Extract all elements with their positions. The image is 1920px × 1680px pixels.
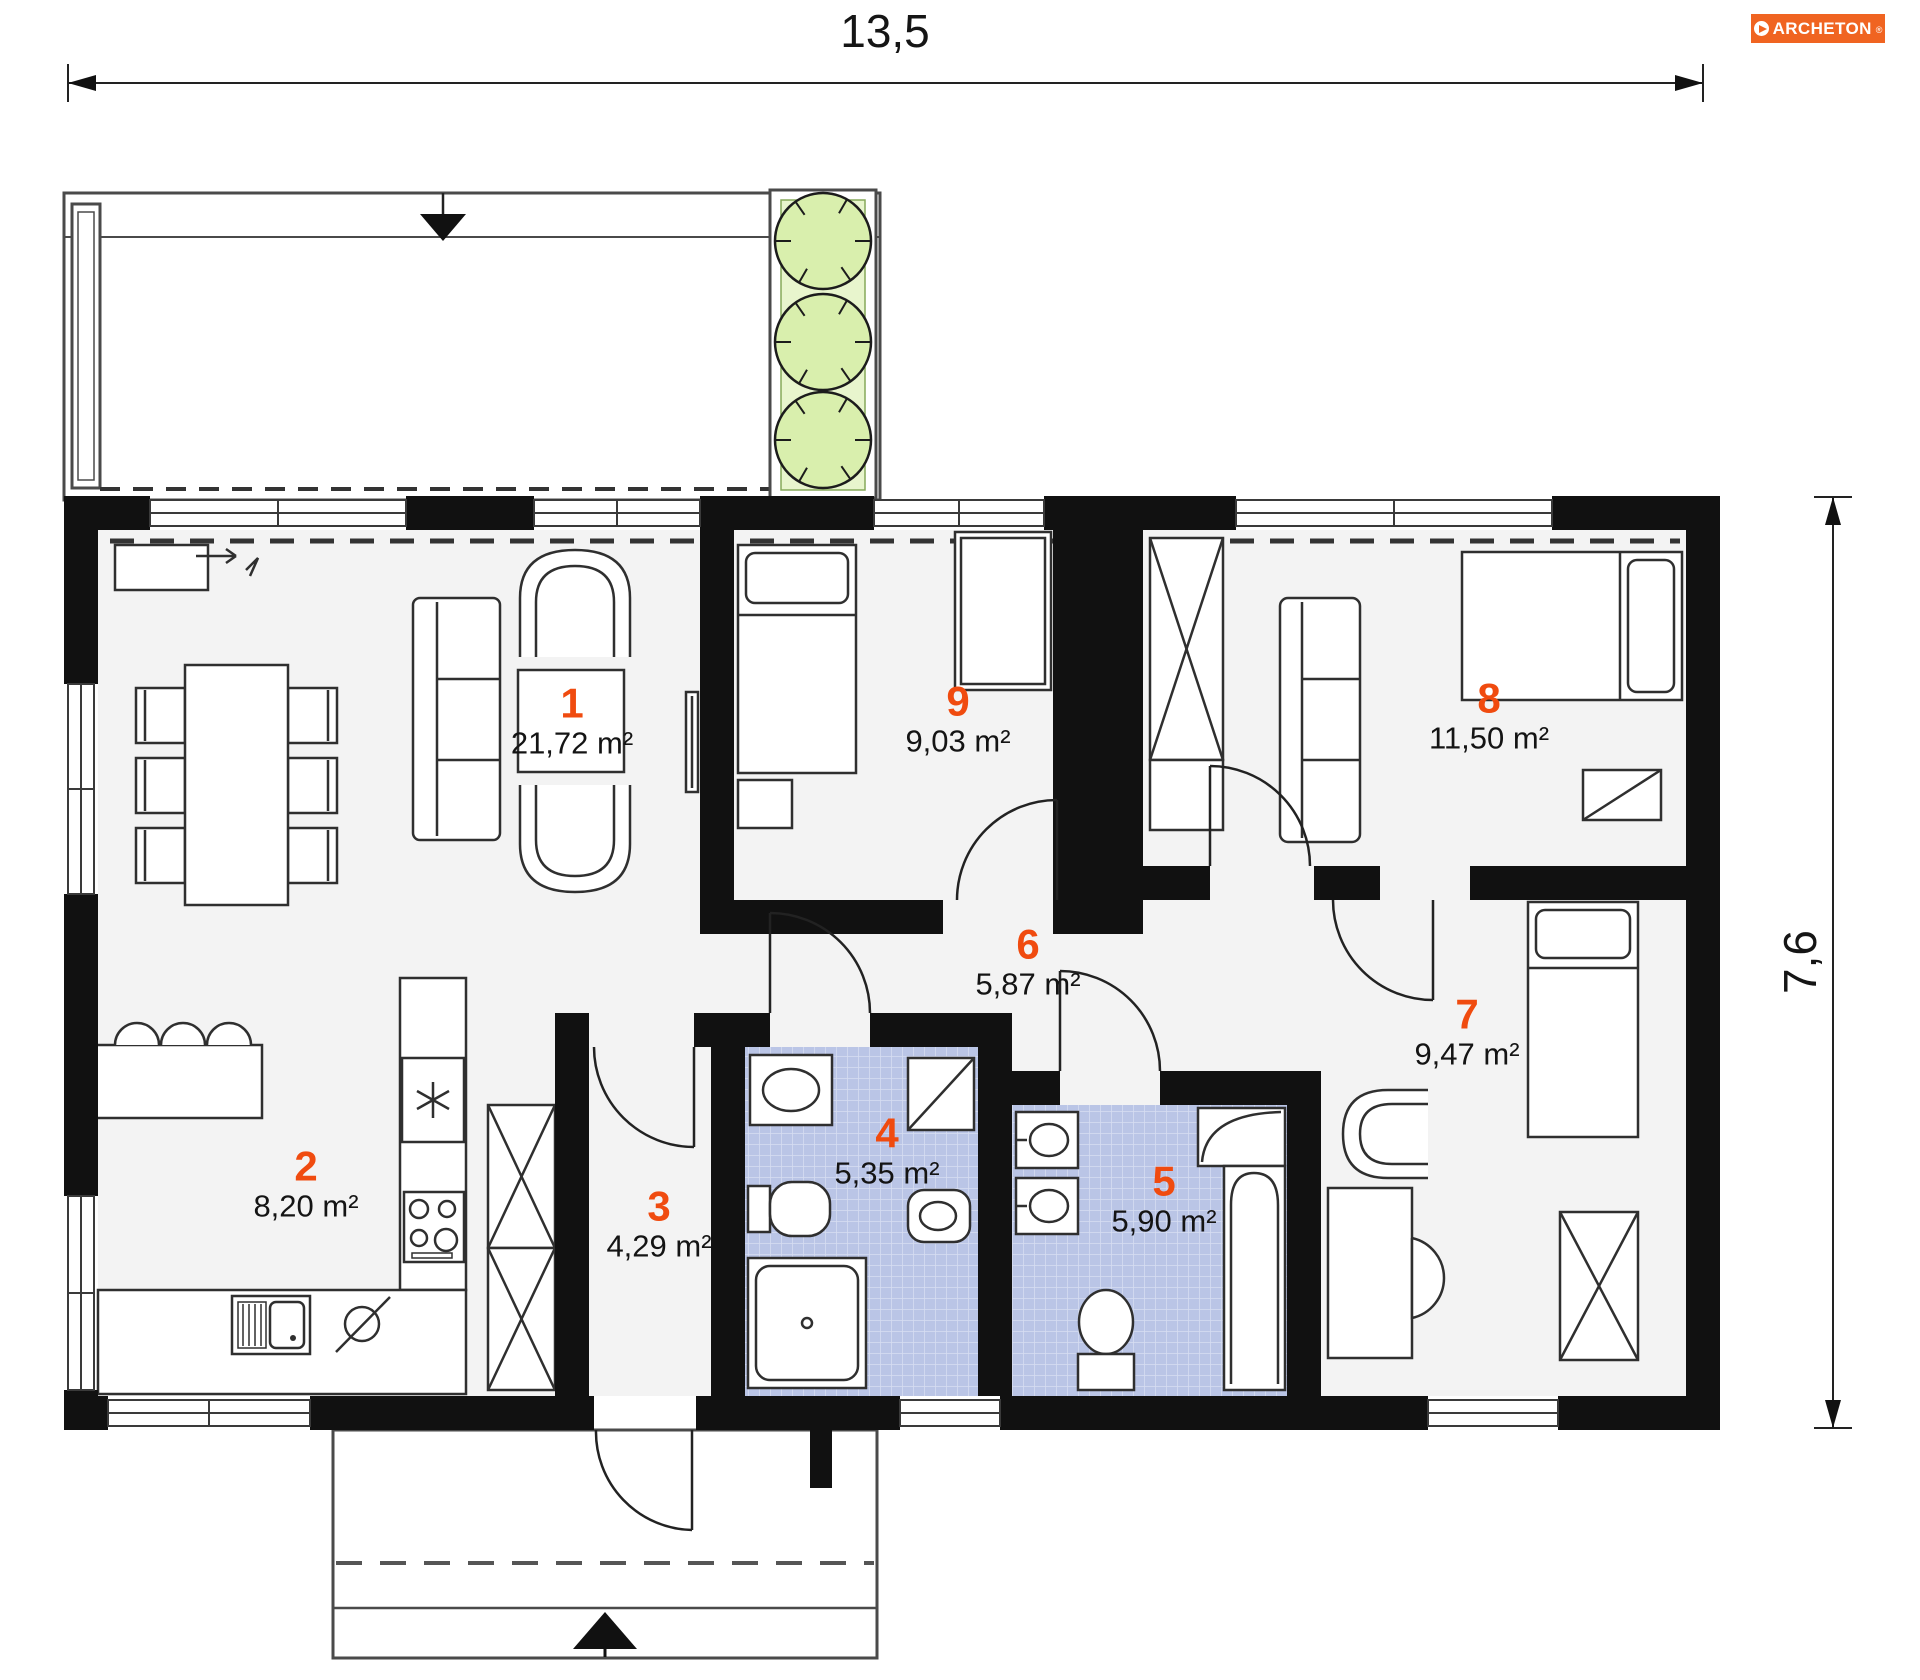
toilet-tank [748, 1186, 770, 1232]
chair [288, 828, 337, 883]
chair [288, 758, 337, 813]
toilet [770, 1182, 830, 1236]
sofa [1280, 598, 1360, 842]
window [1236, 500, 1552, 526]
registered-mark: ® [1876, 25, 1883, 35]
window [1428, 1400, 1558, 1426]
floorplan-page: ARCHETON ® 13,5 7,6 1 21,72 m² 2 8,20 m²… [0, 0, 1920, 1680]
planter-trees [770, 190, 876, 498]
desk [1328, 1188, 1412, 1358]
bathtub [1224, 1166, 1285, 1390]
dimension-width-label: 13,5 [840, 4, 930, 58]
dimension-height-label: 7,6 [1773, 930, 1827, 994]
sofa [413, 598, 500, 840]
chair [288, 688, 337, 743]
chair [136, 688, 185, 743]
closet [955, 532, 1051, 690]
chair [136, 758, 185, 813]
top-terrace [64, 193, 880, 500]
archeton-logo: ARCHETON ® [1751, 14, 1885, 43]
archeton-logo-text: ARCHETON [1773, 14, 1872, 43]
toilet [1079, 1290, 1133, 1354]
bidet [908, 1190, 970, 1242]
dresser [1150, 760, 1223, 830]
window [900, 1400, 1000, 1426]
dining-table [185, 665, 288, 905]
chair [136, 828, 185, 883]
window [534, 500, 700, 526]
coffee-table [518, 670, 624, 772]
window [108, 1400, 310, 1426]
nightstand [738, 780, 792, 828]
window [150, 500, 406, 526]
window [68, 1196, 94, 1390]
pillow [1536, 910, 1630, 958]
window [68, 684, 94, 894]
shower [748, 1258, 866, 1388]
pillow [746, 553, 848, 603]
peninsula-counter [92, 1045, 262, 1118]
pillow [1628, 560, 1674, 692]
archeton-logo-icon [1754, 21, 1769, 36]
dimension-width [68, 64, 1703, 102]
window [874, 500, 1044, 526]
bottom-terrace [333, 1430, 877, 1658]
toilet-tank [1078, 1354, 1134, 1390]
floor-plan-drawing [0, 0, 1920, 1680]
sideboard [115, 545, 208, 590]
